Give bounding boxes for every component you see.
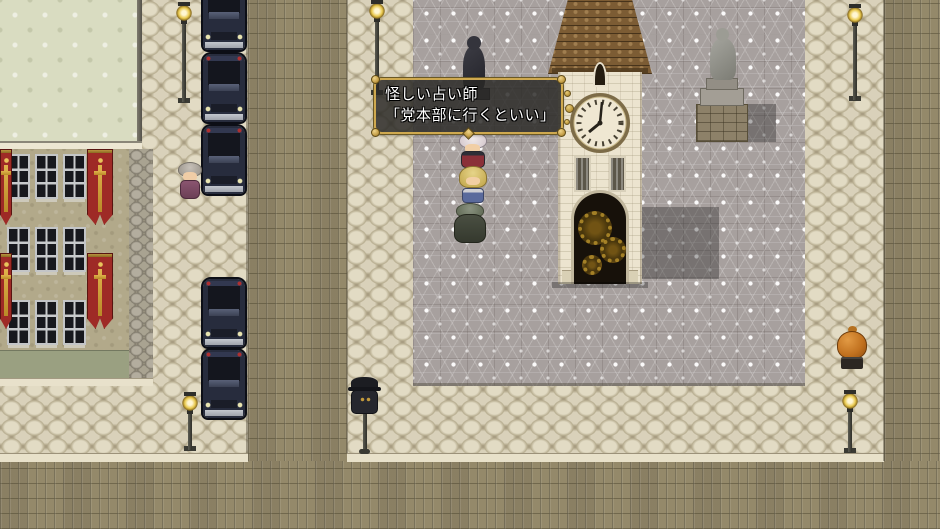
character-cloak [454,214,486,243]
tower-clock [569,92,631,154]
dialogue-box[interactable]: 怪しい占い師 「党本部に行くといい」 [374,78,563,134]
gray-statue [694,24,750,142]
tower-ground-shadow [552,282,648,288]
npc-dark-coat [348,376,381,416]
statue-plinth [700,88,744,106]
scroll-curl-icon [565,104,574,113]
parked-car [201,52,247,124]
tower-window [574,156,591,192]
brick-road-vertical-left [248,0,347,529]
building-window [35,227,58,272]
party-member-cloaked [452,202,488,246]
tower-arch-door [571,190,629,284]
statue-brick-base [696,104,748,142]
party-member-blonde [456,165,490,205]
parked-car [201,0,247,52]
corner-ornament-icon [371,75,380,84]
corner-ornament-icon [557,75,566,84]
street-lamp-pole [363,412,367,450]
brick-road-vertical-right [884,0,940,529]
gear-icon [600,237,626,263]
orange-pot [834,326,870,372]
scroll-curl-icon [564,90,571,97]
brick-road-horizontal [0,461,940,529]
pot-jar [837,331,867,359]
building-window [63,300,86,345]
red-sword-banner [87,253,113,329]
building-window [63,227,86,272]
dialogue-text-line: 「党本部に行くといい」 [385,105,552,126]
character-body [462,188,484,203]
corner-ornament-icon [371,128,380,137]
building-window [63,154,86,199]
building-lower-band [0,350,129,378]
parked-car [201,124,247,196]
statue-head [467,36,481,50]
gear-icon [582,255,602,275]
game-viewport[interactable]: 怪しい占い師 「党本部に行くといい」 [0,0,940,529]
red-sword-banner-partial [0,149,12,225]
building-window [35,300,58,345]
curb-edge-left [0,453,248,462]
tower-window [609,156,626,192]
red-sword-banner [87,149,113,225]
building-window [35,154,58,199]
statue-body [710,38,736,80]
street-lamp [180,392,200,456]
character-body [180,180,200,199]
road-boundary-line-3 [883,0,885,461]
pot-stand [841,357,863,369]
dialogue-speaker-line: 怪しい占い師 [385,84,552,105]
building-side-ledge [129,149,153,378]
building-base-edge [0,378,153,386]
npc-elderly [174,161,206,203]
scroll-curl-icon [564,119,570,125]
street-lamp [174,2,194,108]
street-lamp [845,4,865,106]
tile-edge-line [413,383,805,386]
building-eave [0,141,142,149]
character-coat [351,390,378,414]
character-face [466,177,480,185]
parked-car [201,277,247,349]
street-lamp-base [359,449,370,454]
street-lamp [840,390,860,458]
building-roof [0,0,141,148]
building-roof-edge [137,0,142,149]
statue-head [716,28,729,41]
curb-edge-center [347,453,884,462]
corner-ornament-icon [557,128,566,137]
red-sword-banner-partial [0,253,12,329]
parked-car [201,348,247,420]
